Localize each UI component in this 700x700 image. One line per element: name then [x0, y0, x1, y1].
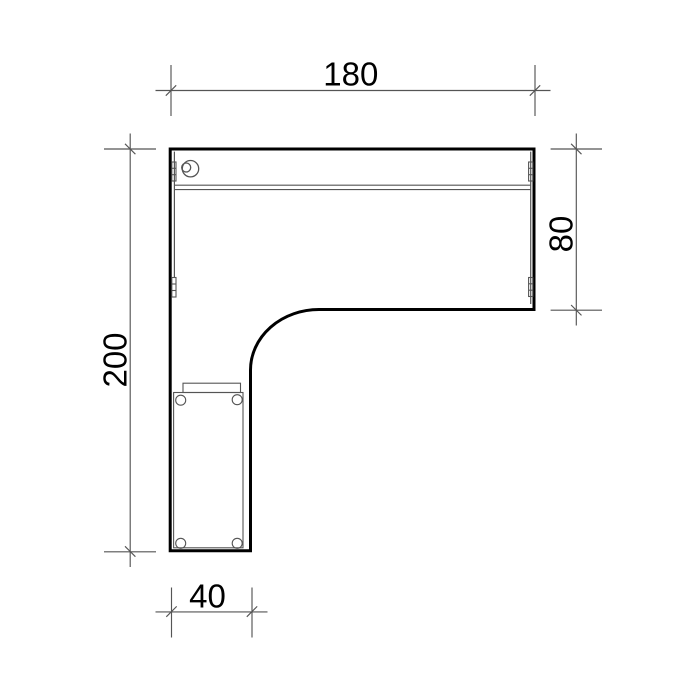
- svg-text:180: 180: [323, 55, 378, 92]
- svg-text:40: 40: [189, 578, 226, 615]
- svg-text:80: 80: [542, 216, 579, 253]
- svg-text:200: 200: [97, 332, 134, 387]
